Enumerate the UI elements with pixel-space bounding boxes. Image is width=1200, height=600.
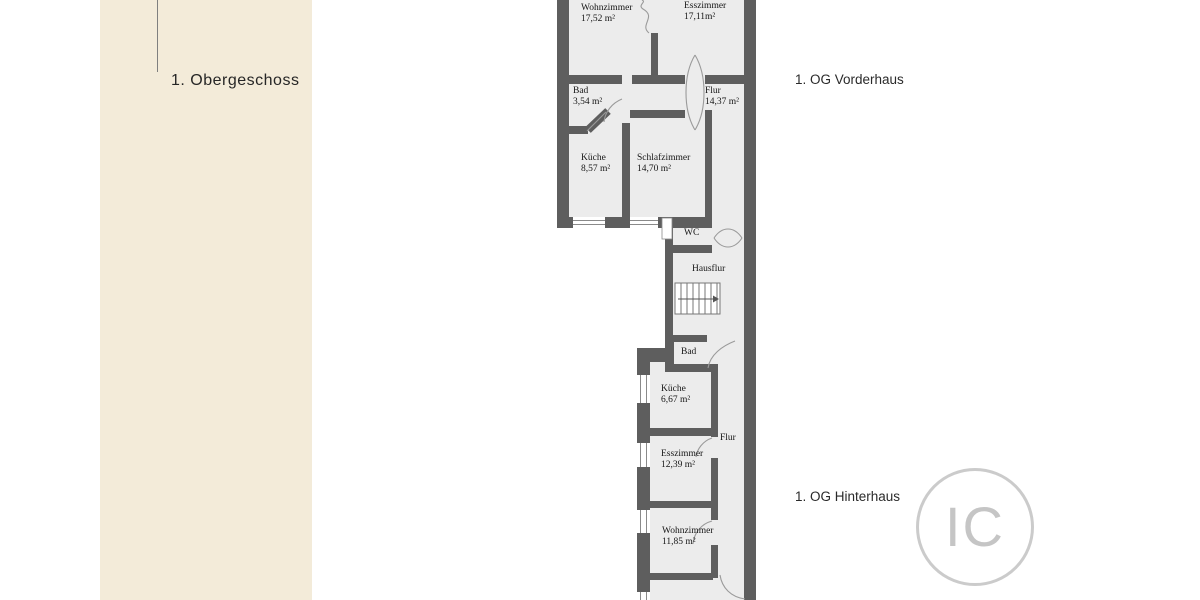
vorderhaus-label: 1. OG Vorderhaus [795,72,904,87]
floor-plan-page: 1. Obergeschoss [0,0,1200,600]
staircase [675,283,720,314]
room-label-schlafzimmer-v: Schlafzimmer 14,70 m² [637,153,690,175]
ic-logo-text: IC [945,499,1005,555]
room-label-wohnzimmer-v: Wohnzimmer 17,52 m² [581,3,632,25]
room-label-bad-v: Bad 3,54 m² [573,86,602,108]
room-label-wohnzimmer-h: Wohnzimmer 11,85 m² [662,526,713,548]
room-label-esszimmer-h: Esszimmer 12,39 m² [661,449,703,471]
room-label-flur-h: Flur [720,433,736,444]
room-label-wc: WC [684,228,699,239]
room-label-kueche-v: Küche 8,57 m² [581,153,610,175]
room-label-esszimmer-v: Esszimmer 17,11m² [684,1,726,23]
room-label-flur-v: Flur 14,37 m² [705,86,739,108]
room-label-bad-h: Bad [681,347,696,358]
ic-logo-watermark: IC [916,468,1034,586]
hinterhaus-label: 1. OG Hinterhaus [795,489,900,504]
room-label-hausflur: Hausflur [692,264,725,275]
room-label-kueche-h: Küche 6,67 m² [661,384,690,406]
